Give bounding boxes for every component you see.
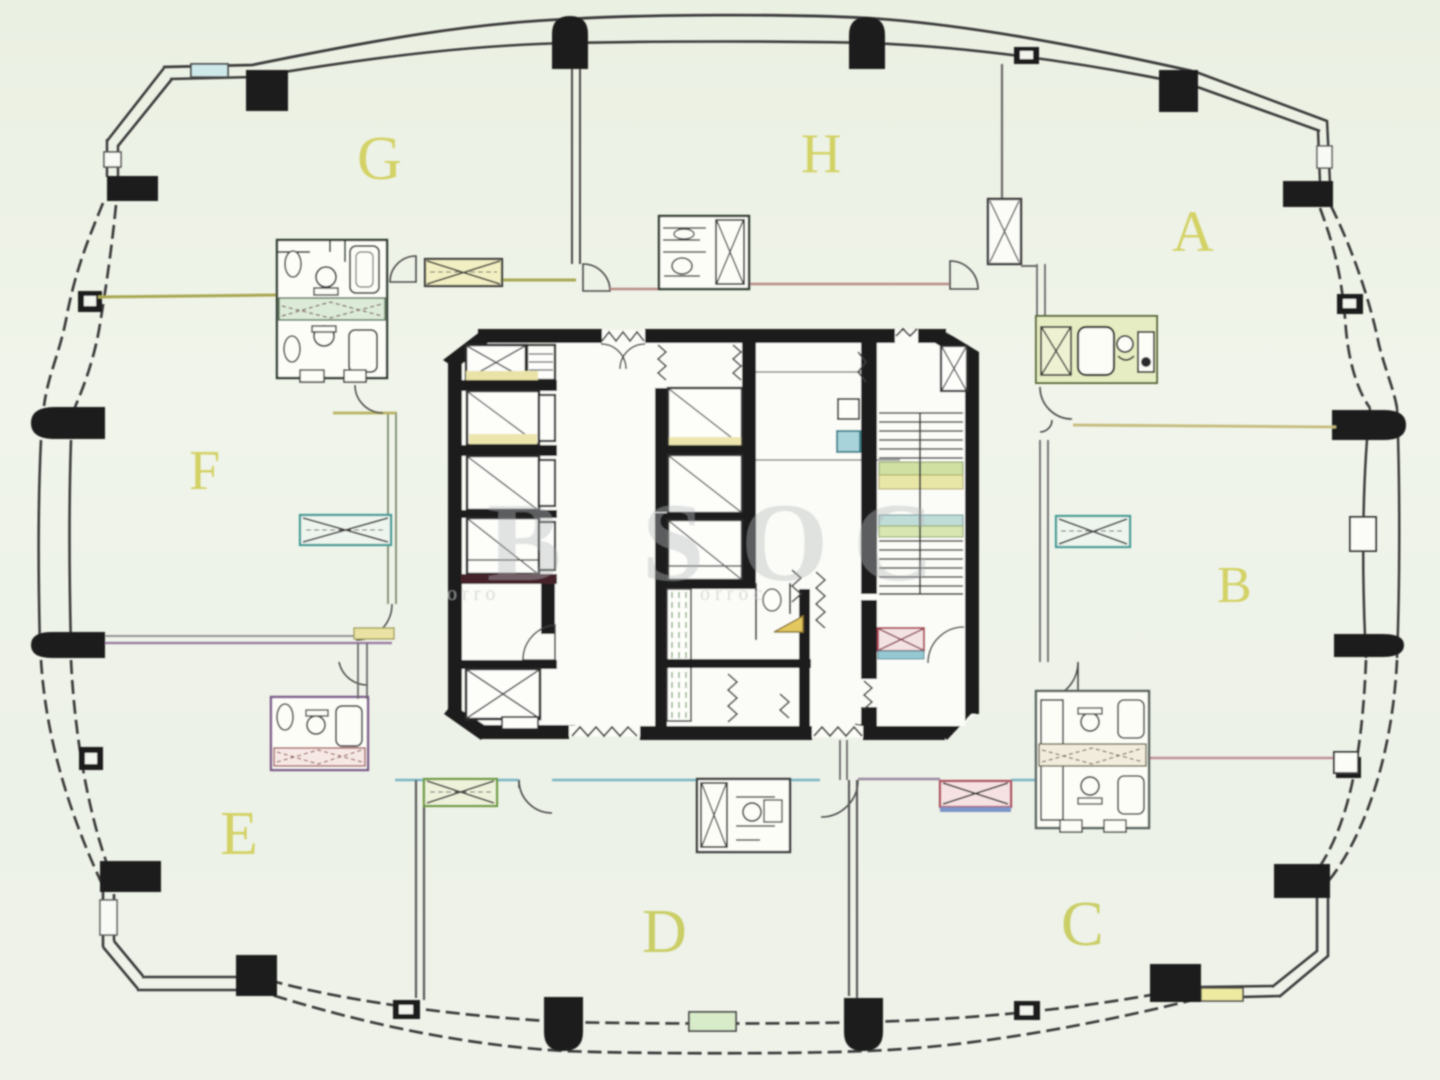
- svg-text:S: S: [642, 481, 704, 605]
- svg-text:C: C: [1061, 888, 1104, 959]
- svg-text:D: D: [642, 898, 687, 966]
- svg-text:A: A: [1172, 199, 1214, 264]
- svg-text:C: C: [853, 481, 934, 605]
- svg-text:B: B: [487, 481, 562, 605]
- svg-text:o r r o c: o r r o c: [700, 583, 762, 605]
- svg-text:o r r o: o r r o: [447, 583, 495, 605]
- svg-text:B: B: [1217, 557, 1252, 614]
- svg-text:E: E: [220, 800, 258, 868]
- svg-text:H: H: [801, 123, 841, 185]
- svg-text:F: F: [189, 440, 220, 502]
- svg-text:G: G: [357, 125, 402, 193]
